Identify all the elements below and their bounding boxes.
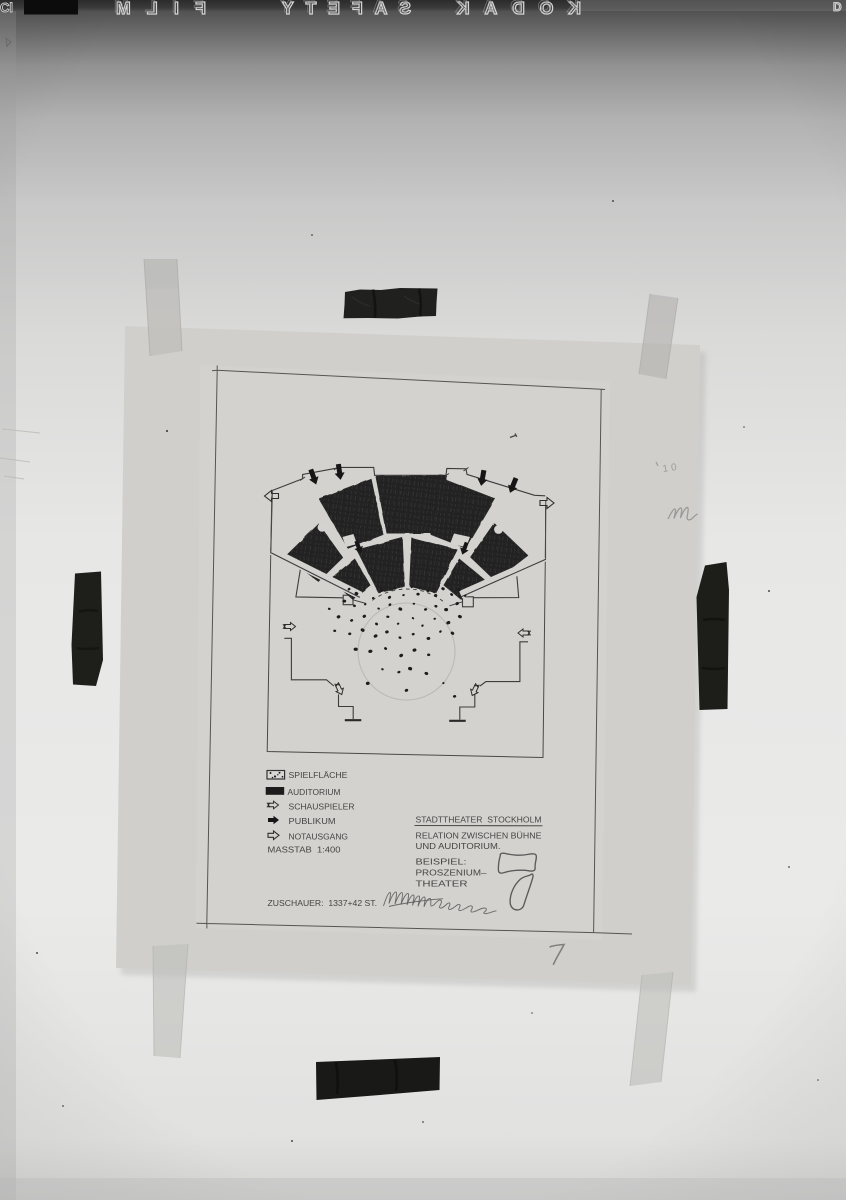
svg-text:SPIELFLÄCHE: SPIELFLÄCHE: [289, 771, 348, 780]
svg-text:SCHAUSPIELER: SCHAUSPIELER: [289, 802, 355, 811]
svg-text:PUBLIKUM: PUBLIKUM: [289, 817, 336, 826]
svg-text:ZUSCHAUER: 1337+42 ST.: ZUSCHAUER: 1337+42 ST.: [268, 899, 378, 908]
svg-text:UND AUDITORIUM.: UND AUDITORIUM.: [416, 842, 501, 851]
svg-text:RELATION ZWISCHEN BÜHNE: RELATION ZWISCHEN BÜHNE: [416, 832, 542, 841]
svg-text:Cl: Cl: [0, 0, 13, 15]
svg-text:PROSZENIUM–: PROSZENIUM–: [416, 869, 488, 878]
svg-text:D: D: [833, 0, 842, 14]
svg-text:MASSTAB 1:400: MASSTAB 1:400: [268, 846, 342, 855]
svg-text:AUDITORIUM: AUDITORIUM: [288, 788, 341, 797]
svg-text:THEATER: THEATER: [416, 880, 469, 889]
svg-text:BEISPIEL:: BEISPIEL:: [416, 857, 467, 866]
svg-text:NOTAUSGANG: NOTAUSGANG: [289, 832, 349, 841]
svg-text:STADTTHEATER STOCKHOLM: STADTTHEATER STOCKHOLM: [416, 816, 542, 825]
